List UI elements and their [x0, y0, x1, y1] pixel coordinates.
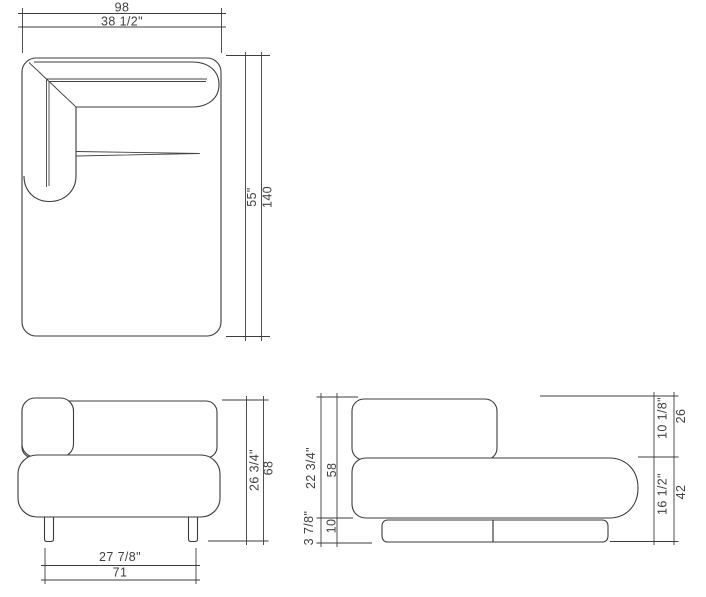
top-view-outline — [22, 58, 221, 336]
dim-front-span-cm: 71 — [113, 566, 128, 580]
dim-side-body-cm: 58 — [325, 463, 339, 478]
dim-front-height-cm: 68 — [262, 461, 276, 476]
technical-drawing-canvas: 98 38 1/2" 55" 140 26 3/4" 68 27 7/8" 71 — [0, 0, 706, 597]
top-view-seat-seam — [76, 152, 200, 157]
drawing-svg: 98 38 1/2" 55" 140 26 3/4" 68 27 7/8" 71 — [0, 0, 706, 597]
dim-front-span-in: 27 7/8" — [99, 550, 141, 564]
dim-top-depth-cm: 140 — [261, 186, 275, 208]
dim-side-body-in: 22 3/4" — [304, 447, 318, 489]
side-view-backrest — [352, 399, 497, 460]
dim-top-depth-in: 55" — [245, 187, 259, 207]
side-view-seat — [352, 458, 638, 518]
front-view-right-leg — [189, 516, 198, 542]
front-view: 26 3/4" 68 27 7/8" 71 — [18, 396, 276, 584]
top-view-top-piping — [47, 79, 208, 82]
front-view-left-leg — [45, 516, 54, 542]
dim-side-seat-in: 16 1/2" — [656, 473, 670, 515]
dim-side-base-cm: 10 — [325, 519, 339, 534]
top-view: 98 38 1/2" 55" 140 — [18, 1, 275, 342]
front-view-seat — [18, 455, 220, 517]
top-view-corner-seam — [29, 63, 76, 108]
dim-front-height-in: 26 3/4" — [248, 449, 262, 491]
dim-top-width-in: 38 1/2" — [101, 15, 143, 29]
side-view: 22 3/4" 58 3 7/8" 10 10 1/8" 26 16 1/2" … — [302, 392, 688, 547]
top-view-left-piping — [47, 79, 50, 187]
side-view-base-rear — [493, 520, 608, 542]
dim-top-width-cm: 98 — [115, 1, 130, 15]
dim-side-base-in: 3 7/8" — [302, 511, 316, 546]
top-view-backrest-outline — [24, 62, 219, 202]
dim-side-seat-cm: 42 — [674, 485, 688, 500]
dim-side-backrest-cm: 26 — [674, 409, 688, 424]
dim-side-backrest-in: 10 1/8" — [656, 397, 670, 439]
side-view-base-front — [382, 520, 493, 542]
front-view-arm — [22, 398, 74, 457]
